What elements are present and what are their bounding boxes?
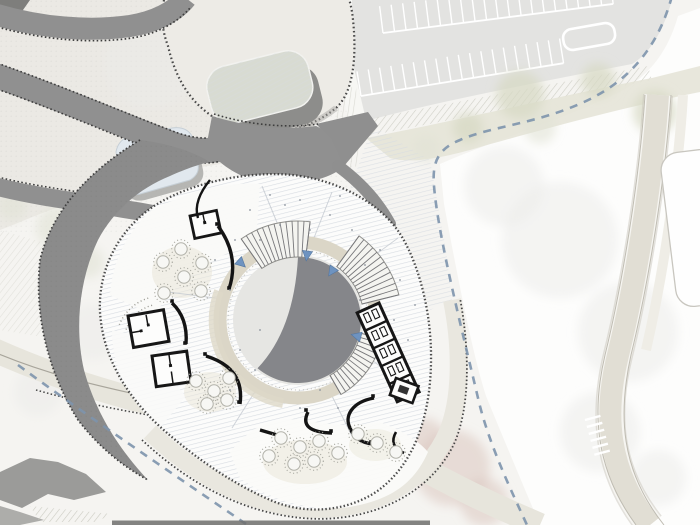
roof-speck (249, 209, 251, 211)
room-west-upper (128, 310, 169, 348)
table-with-chairs (193, 254, 212, 273)
roof-speck (309, 229, 311, 231)
table-with-chairs (291, 438, 310, 457)
roof-speck (337, 407, 339, 409)
table-with-chairs (285, 455, 304, 474)
roof-speck (319, 389, 321, 391)
roof-speck (259, 239, 261, 241)
tree-canopy (464, 146, 544, 226)
roof-speck (239, 349, 241, 351)
table-with-chairs (349, 425, 368, 444)
table-with-chairs (387, 443, 406, 462)
roof-speck (399, 279, 401, 281)
sheet-edge-bar (112, 521, 430, 525)
room-west-lower (152, 351, 191, 387)
roof-speck (299, 199, 301, 201)
roof-speck (359, 299, 361, 301)
table-with-chairs (305, 452, 324, 471)
roof-speck (269, 194, 271, 196)
table-with-chairs (220, 369, 239, 388)
site-plan-canvas (0, 0, 700, 525)
table-with-chairs (192, 282, 211, 301)
roof-speck (397, 367, 399, 369)
table-with-chairs (198, 395, 217, 414)
site-plan (0, 0, 700, 525)
roof-speck (284, 204, 286, 206)
roof-speck (229, 389, 231, 391)
tree-canopy (524, 112, 556, 144)
roof-speck (259, 329, 261, 331)
table-with-chairs (175, 268, 194, 287)
roof-speck (279, 224, 281, 226)
roof-speck (329, 214, 331, 216)
table-with-chairs (187, 372, 206, 391)
table-with-chairs (172, 240, 191, 259)
roof-speck (407, 339, 409, 341)
table-with-chairs (310, 432, 329, 451)
table-with-chairs (368, 434, 387, 453)
roof-speck (364, 264, 366, 266)
roof-speck (214, 259, 216, 261)
roof-speck (379, 249, 381, 251)
tree-canopy (413, 135, 439, 161)
table-with-chairs (272, 429, 291, 448)
table-with-chairs (218, 391, 237, 410)
table-with-chairs (155, 284, 174, 303)
tree-canopy (496, 71, 544, 119)
roof-speck (351, 229, 353, 231)
table-with-chairs (260, 447, 279, 466)
table-with-chairs (329, 444, 348, 463)
table-with-chairs (154, 253, 173, 272)
tree-canopy (581, 63, 615, 97)
roof-speck (393, 319, 395, 321)
roof-speck (254, 369, 256, 371)
roof-speck (414, 304, 416, 306)
tree-canopy (453, 113, 483, 143)
roof-speck (339, 195, 341, 197)
roof-speck (229, 289, 231, 291)
roof-speck (299, 407, 301, 409)
roof-speck (234, 239, 236, 241)
